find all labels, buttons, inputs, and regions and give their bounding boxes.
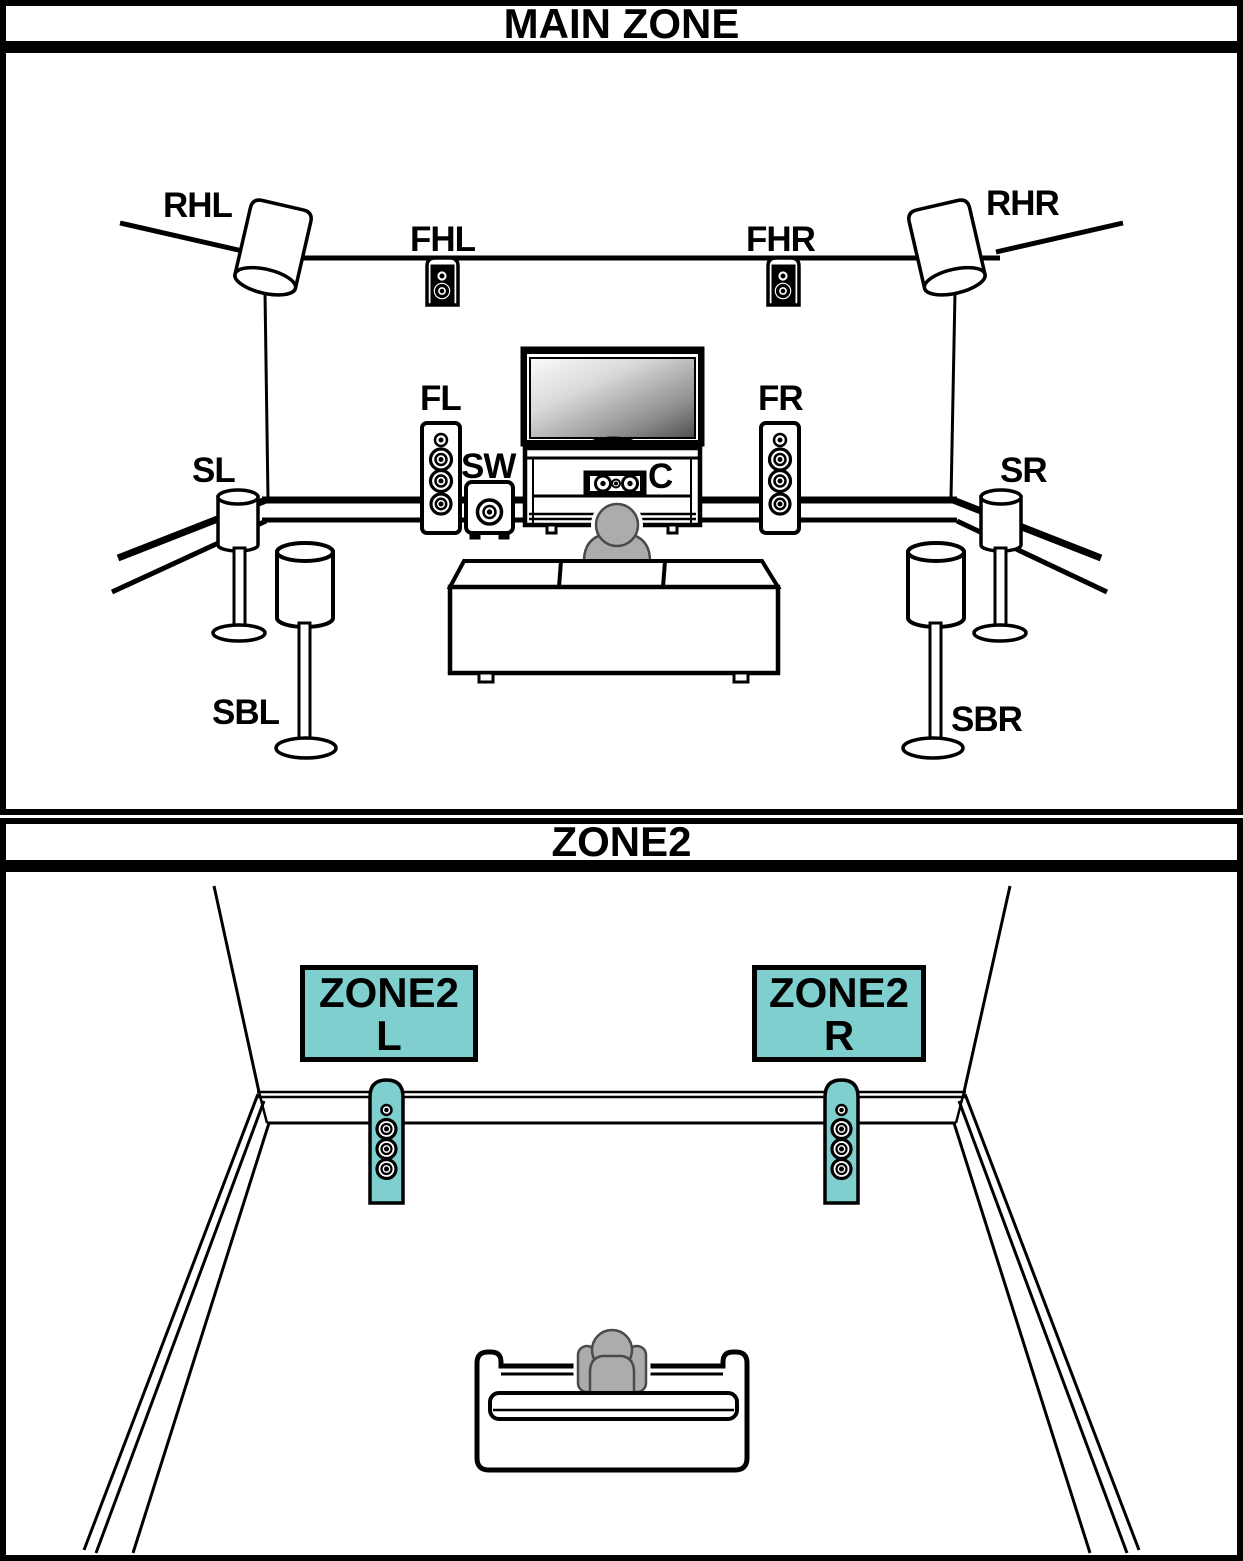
- zone2-left-speaker: [370, 1080, 403, 1203]
- zone2-drawing: [0, 866, 1243, 1561]
- center-speaker: [584, 471, 646, 496]
- sl-speaker: [213, 490, 265, 641]
- zone2-left-tag-line2: L: [376, 1014, 402, 1057]
- label-fr: FR: [758, 381, 803, 416]
- main-zone-drawing: [0, 47, 1243, 815]
- zone2-right-speaker-tag: ZONE2 R: [752, 965, 926, 1062]
- label-sr: SR: [1000, 453, 1047, 488]
- zone2-left-speaker-tag: ZONE2 L: [300, 965, 478, 1062]
- zone2-sofa-cushion: [490, 1393, 737, 1419]
- main-zone-title-bar: MAIN ZONE: [0, 0, 1243, 47]
- zone2-left-tag-line1: ZONE2: [319, 971, 459, 1014]
- zone2-right-speaker: [825, 1080, 858, 1203]
- label-c: C: [648, 459, 672, 494]
- sbl-speaker: [276, 543, 336, 758]
- sr-speaker: [974, 490, 1026, 641]
- sofa: [450, 561, 778, 682]
- zone2-right-tag-line1: ZONE2: [769, 971, 909, 1014]
- tv: [521, 347, 704, 448]
- main-zone-title: MAIN ZONE: [504, 0, 740, 48]
- fr-speaker: [761, 423, 799, 533]
- fhl-speaker: [427, 258, 458, 305]
- label-sbl: SBL: [212, 695, 279, 730]
- fl-speaker: [422, 423, 460, 533]
- subwoofer: [466, 482, 513, 539]
- label-rhl: RHL: [163, 188, 232, 223]
- rhr-speaker: [907, 198, 988, 300]
- label-sl: SL: [192, 453, 235, 488]
- speaker-layout-diagram: MAIN ZONE: [0, 0, 1243, 1561]
- zone2-listener-figure: [578, 1330, 646, 1398]
- label-sw: SW: [461, 449, 515, 484]
- label-sbr: SBR: [951, 702, 1022, 737]
- rhl-speaker: [232, 198, 313, 300]
- label-fhl: FHL: [410, 222, 475, 257]
- zone2-title: ZONE2: [551, 818, 691, 866]
- label-fl: FL: [420, 381, 461, 416]
- label-fhr: FHR: [746, 222, 815, 257]
- zone2-right-tag-line2: R: [824, 1014, 854, 1057]
- label-rhr: RHR: [986, 186, 1059, 221]
- fhr-speaker: [768, 258, 799, 305]
- zone2-title-bar: ZONE2: [0, 818, 1243, 866]
